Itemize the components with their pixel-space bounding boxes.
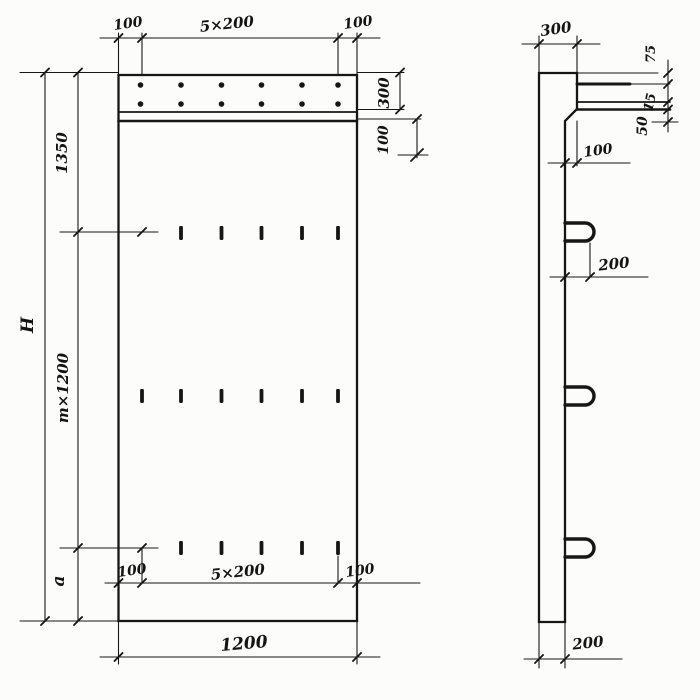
drawing-sheet: 100 5×200 100 300 100 (0, 0, 700, 700)
technical-drawing: 100 5×200 100 300 100 (0, 0, 700, 700)
dim-hook-spacing: 200 (596, 253, 631, 274)
dim-top-spacing: 5×200 (199, 12, 255, 36)
dim-chamfer-offset: 100 (582, 141, 613, 161)
front-left-dimensions: H 1350 m×1200 a (18, 69, 158, 626)
dim-lower-segment: a (49, 575, 69, 586)
slot-row-1 (179, 226, 340, 240)
front-view: 100 5×200 100 300 100 (18, 12, 428, 664)
side-thickness-dimension: 200 (524, 622, 622, 668)
front-top-dimension: 100 5×200 100 (100, 12, 380, 75)
panel-outline (119, 75, 358, 621)
anchor-dots (138, 82, 341, 107)
front-right-dimensions: 300 100 (357, 69, 428, 162)
slot-row-3 (179, 541, 340, 555)
dim-side-top-width: 300 (539, 18, 573, 40)
dim-wall-thickness: 200 (570, 632, 605, 653)
dim-band-gap: 100 (376, 125, 392, 154)
dim-overall-width: 1200 (220, 632, 269, 656)
slot-row-2 (140, 389, 340, 403)
dim-top-left-offset: 100 (112, 14, 143, 34)
dim-ledge-top: 75 (644, 45, 659, 63)
dim-bottom-spacing: 5×200 (210, 560, 266, 584)
dim-bottom-left-offset: 100 (116, 561, 147, 581)
dim-bottom-right-offset: 100 (344, 561, 375, 581)
side-chamfer-dimension: 100 (548, 121, 630, 167)
side-ledge-dimensions: 75 15 50 (635, 45, 678, 136)
front-width-dimension: 1200 (100, 621, 380, 664)
side-view: 300 75 15 50 100 (522, 18, 678, 668)
dim-ledge-gap: 50 (635, 116, 651, 136)
dim-top-right-offset: 100 (342, 13, 373, 33)
dim-upper-segment: 1350 (53, 132, 71, 174)
dim-band-height: 300 (375, 77, 393, 109)
dim-middle-segment: m×1200 (54, 352, 72, 423)
dim-overall-height: H (18, 316, 38, 334)
side-top-dimension: 300 (522, 18, 600, 73)
